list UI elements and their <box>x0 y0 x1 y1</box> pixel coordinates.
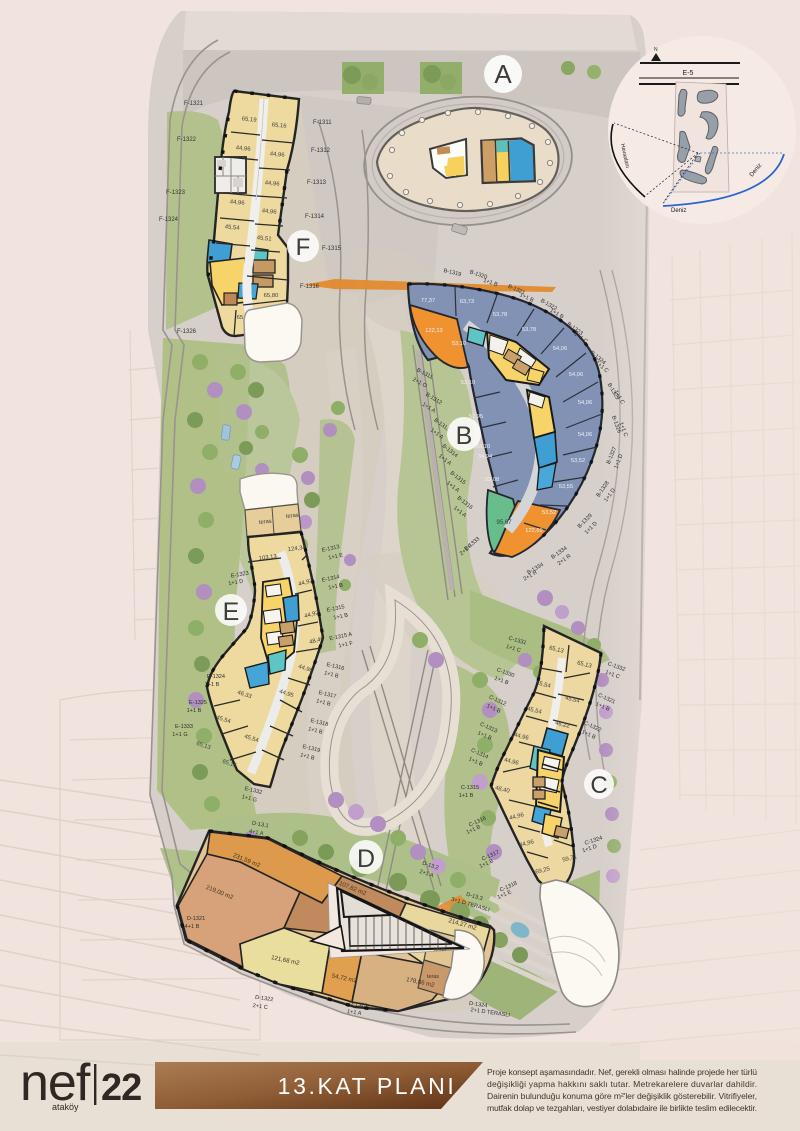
svg-text:F-1326: F-1326 <box>177 329 197 335</box>
svg-text:E-1333: E-1333 <box>175 724 193 730</box>
svg-text:C-1315: C-1315 <box>461 785 479 791</box>
svg-text:E: E <box>223 598 240 626</box>
svg-text:F-1312: F-1312 <box>311 148 331 154</box>
svg-text:mutfak dolap ve tezgahları, ve: mutfak dolap ve tezgahları, vestiyer dol… <box>487 1103 757 1113</box>
svg-text:65,80: 65,80 <box>264 293 279 299</box>
svg-text:1+1 G: 1+1 G <box>172 732 187 738</box>
svg-text:değişikliği yapma hakkını sakl: değişikliği yapma hakkını saklı tutar. M… <box>487 1079 757 1089</box>
svg-text:1+1 B: 1+1 B <box>459 793 474 799</box>
svg-text:Proje konsept aşamasındadır. N: Proje konsept aşamasındadır. Nef, gerekl… <box>487 1067 757 1077</box>
svg-text:E-1324: E-1324 <box>207 674 225 680</box>
svg-text:34,94: 34,94 <box>478 454 492 460</box>
svg-text:95,67: 95,67 <box>496 520 512 526</box>
svg-text:A: A <box>494 59 512 89</box>
svg-text:53,78: 53,78 <box>493 312 507 318</box>
svg-text:E-1325: E-1325 <box>189 700 207 706</box>
svg-text:Deniz: Deniz <box>671 208 686 214</box>
svg-text:teras: teras <box>427 974 439 980</box>
svg-text:53,10: 53,10 <box>476 444 490 450</box>
svg-text:F-1323: F-1323 <box>166 190 186 196</box>
svg-text:77,37: 77,37 <box>421 298 435 304</box>
svg-text:F-1313: F-1313 <box>307 180 327 186</box>
svg-text:Dairenin bulunduğu konuma göre: Dairenin bulunduğu konuma göre m²'ler de… <box>487 1091 757 1101</box>
svg-text:53,52: 53,52 <box>571 458 585 464</box>
svg-text:F-1324: F-1324 <box>159 217 179 223</box>
svg-text:122,69: 122,69 <box>525 528 542 534</box>
svg-text:53,78: 53,78 <box>522 327 536 333</box>
svg-text:B: B <box>456 422 473 450</box>
svg-text:1+1 B: 1+1 B <box>205 682 220 688</box>
svg-text:N: N <box>654 47 658 53</box>
svg-text:53,55: 53,55 <box>559 484 573 490</box>
svg-text:D: D <box>357 845 375 873</box>
svg-text:F-1315: F-1315 <box>322 246 342 252</box>
svg-text:13.KAT PLANI: 13.KAT PLANI <box>278 1073 457 1099</box>
svg-text:E-5: E-5 <box>683 70 694 77</box>
svg-text:F-1314: F-1314 <box>305 214 325 220</box>
svg-text:F: F <box>296 234 311 261</box>
svg-text:53,08: 53,08 <box>485 477 499 483</box>
svg-text:54,06: 54,06 <box>553 346 567 352</box>
svg-text:C: C <box>590 772 607 799</box>
svg-text:F-1322: F-1322 <box>177 137 197 143</box>
svg-text:122,13: 122,13 <box>425 328 442 334</box>
svg-text:D-1321: D-1321 <box>187 916 205 922</box>
svg-text:54,06: 54,06 <box>578 432 592 438</box>
svg-text:53,10: 53,10 <box>461 380 475 386</box>
svg-text:53,52: 53,52 <box>542 510 556 516</box>
svg-text:53,10: 53,10 <box>452 341 466 347</box>
svg-text:4+1 B: 4+1 B <box>185 924 200 930</box>
svg-text:F-1311: F-1311 <box>313 120 332 126</box>
svg-text:63,73: 63,73 <box>460 299 474 305</box>
svg-text:F-1321: F-1321 <box>184 101 204 107</box>
svg-text:54,06: 54,06 <box>578 400 592 406</box>
svg-text:1+1 B: 1+1 B <box>187 708 202 714</box>
svg-text:22: 22 <box>101 1067 141 1109</box>
svg-text:54,06: 54,06 <box>569 372 583 378</box>
svg-text:F-1316: F-1316 <box>300 284 320 290</box>
svg-text:teras: teras <box>434 947 446 953</box>
svg-text:ataköy: ataköy <box>52 1102 79 1112</box>
